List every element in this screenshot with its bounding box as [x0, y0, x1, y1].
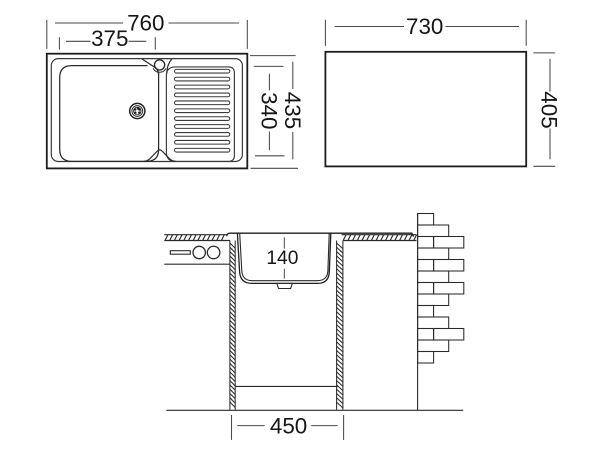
svg-text:450: 450 — [270, 414, 307, 439]
svg-text:140: 140 — [266, 248, 298, 269]
svg-text:405: 405 — [537, 91, 562, 128]
svg-text:375: 375 — [91, 26, 128, 51]
svg-text:730: 730 — [406, 14, 443, 39]
svg-text:435: 435 — [280, 92, 305, 129]
svg-text:760: 760 — [127, 11, 164, 36]
svg-text:340: 340 — [257, 92, 282, 129]
